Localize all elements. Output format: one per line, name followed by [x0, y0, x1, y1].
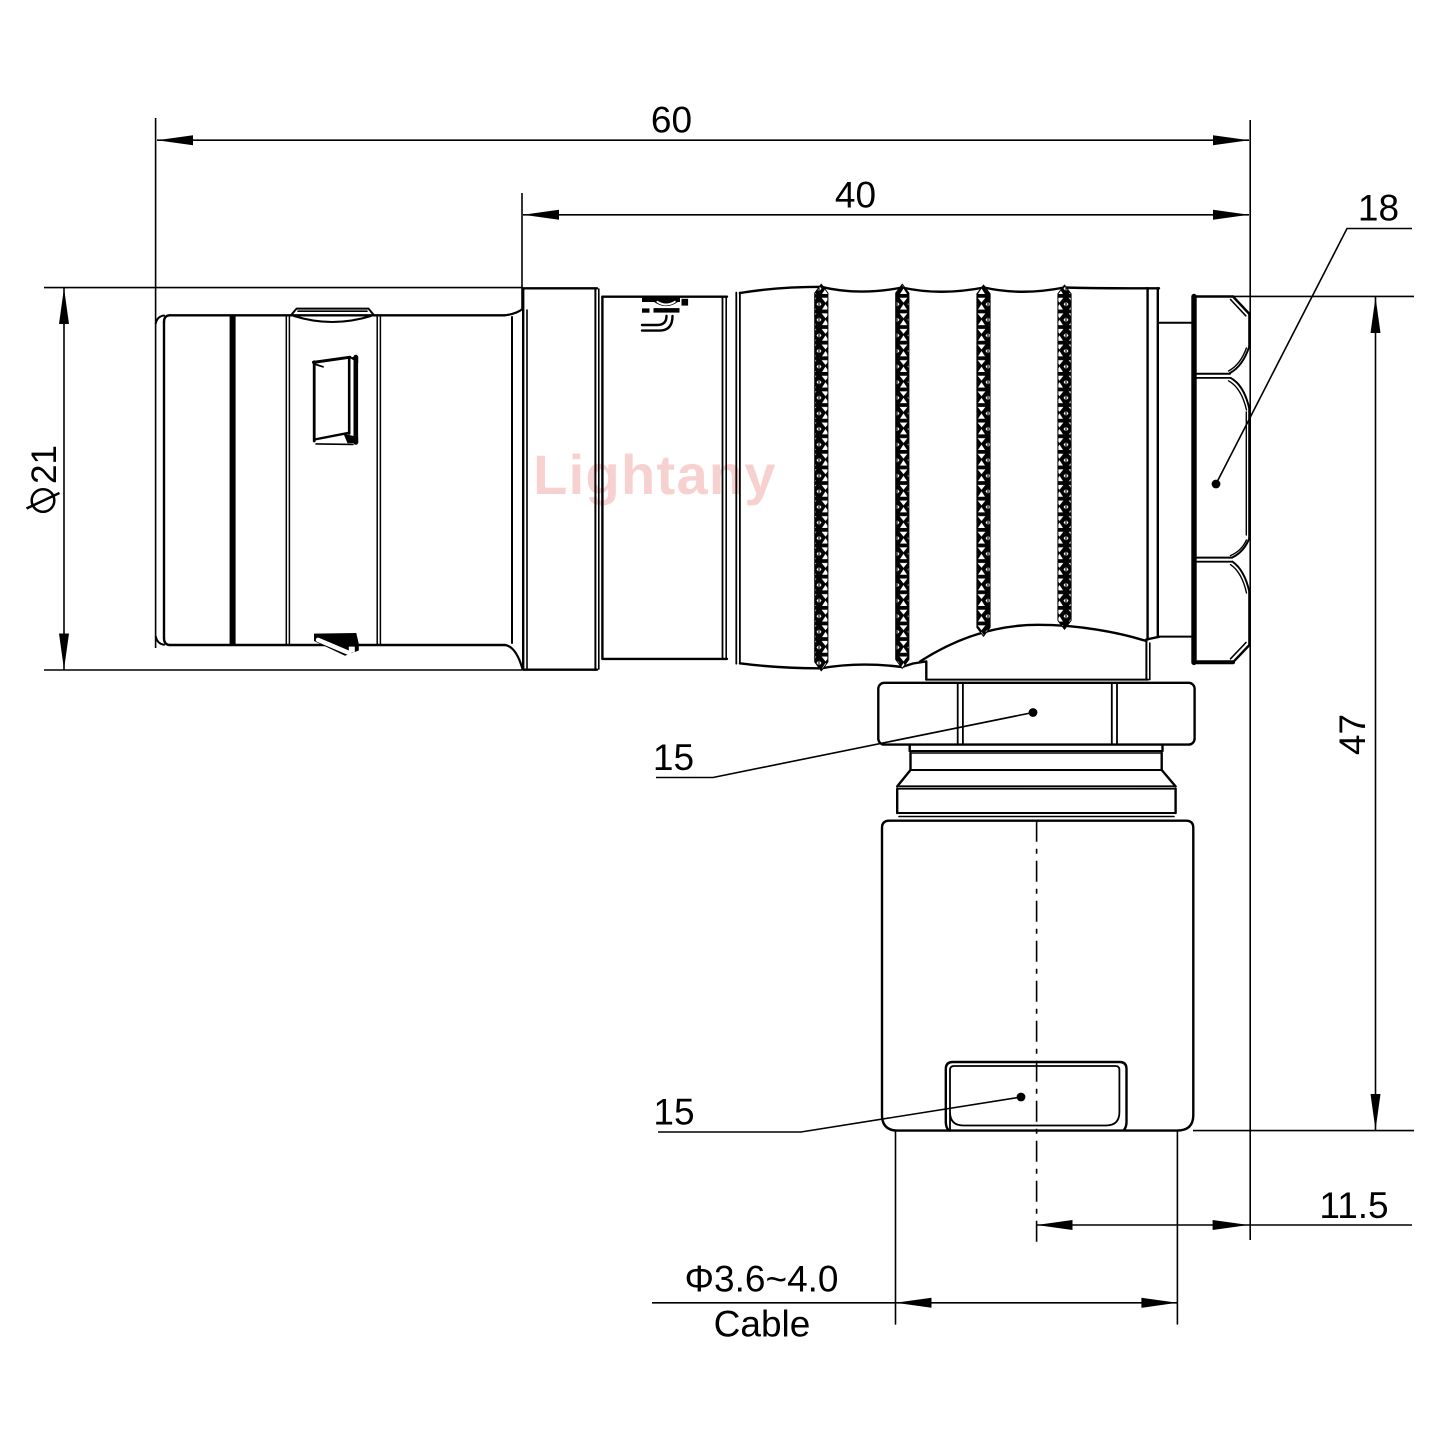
svg-text:18: 18: [1358, 188, 1399, 229]
svg-text:40: 40: [835, 175, 876, 216]
svg-text:47: 47: [1332, 714, 1373, 755]
svg-text:15: 15: [653, 1092, 694, 1133]
svg-text:15: 15: [653, 737, 694, 778]
svg-text:Φ3.6~4.0: Φ3.6~4.0: [685, 1259, 839, 1300]
svg-text:11.5: 11.5: [1319, 1185, 1388, 1226]
svg-text:60: 60: [651, 100, 692, 141]
svg-text:21: 21: [25, 445, 64, 484]
svg-text:Cable: Cable: [714, 1304, 811, 1345]
